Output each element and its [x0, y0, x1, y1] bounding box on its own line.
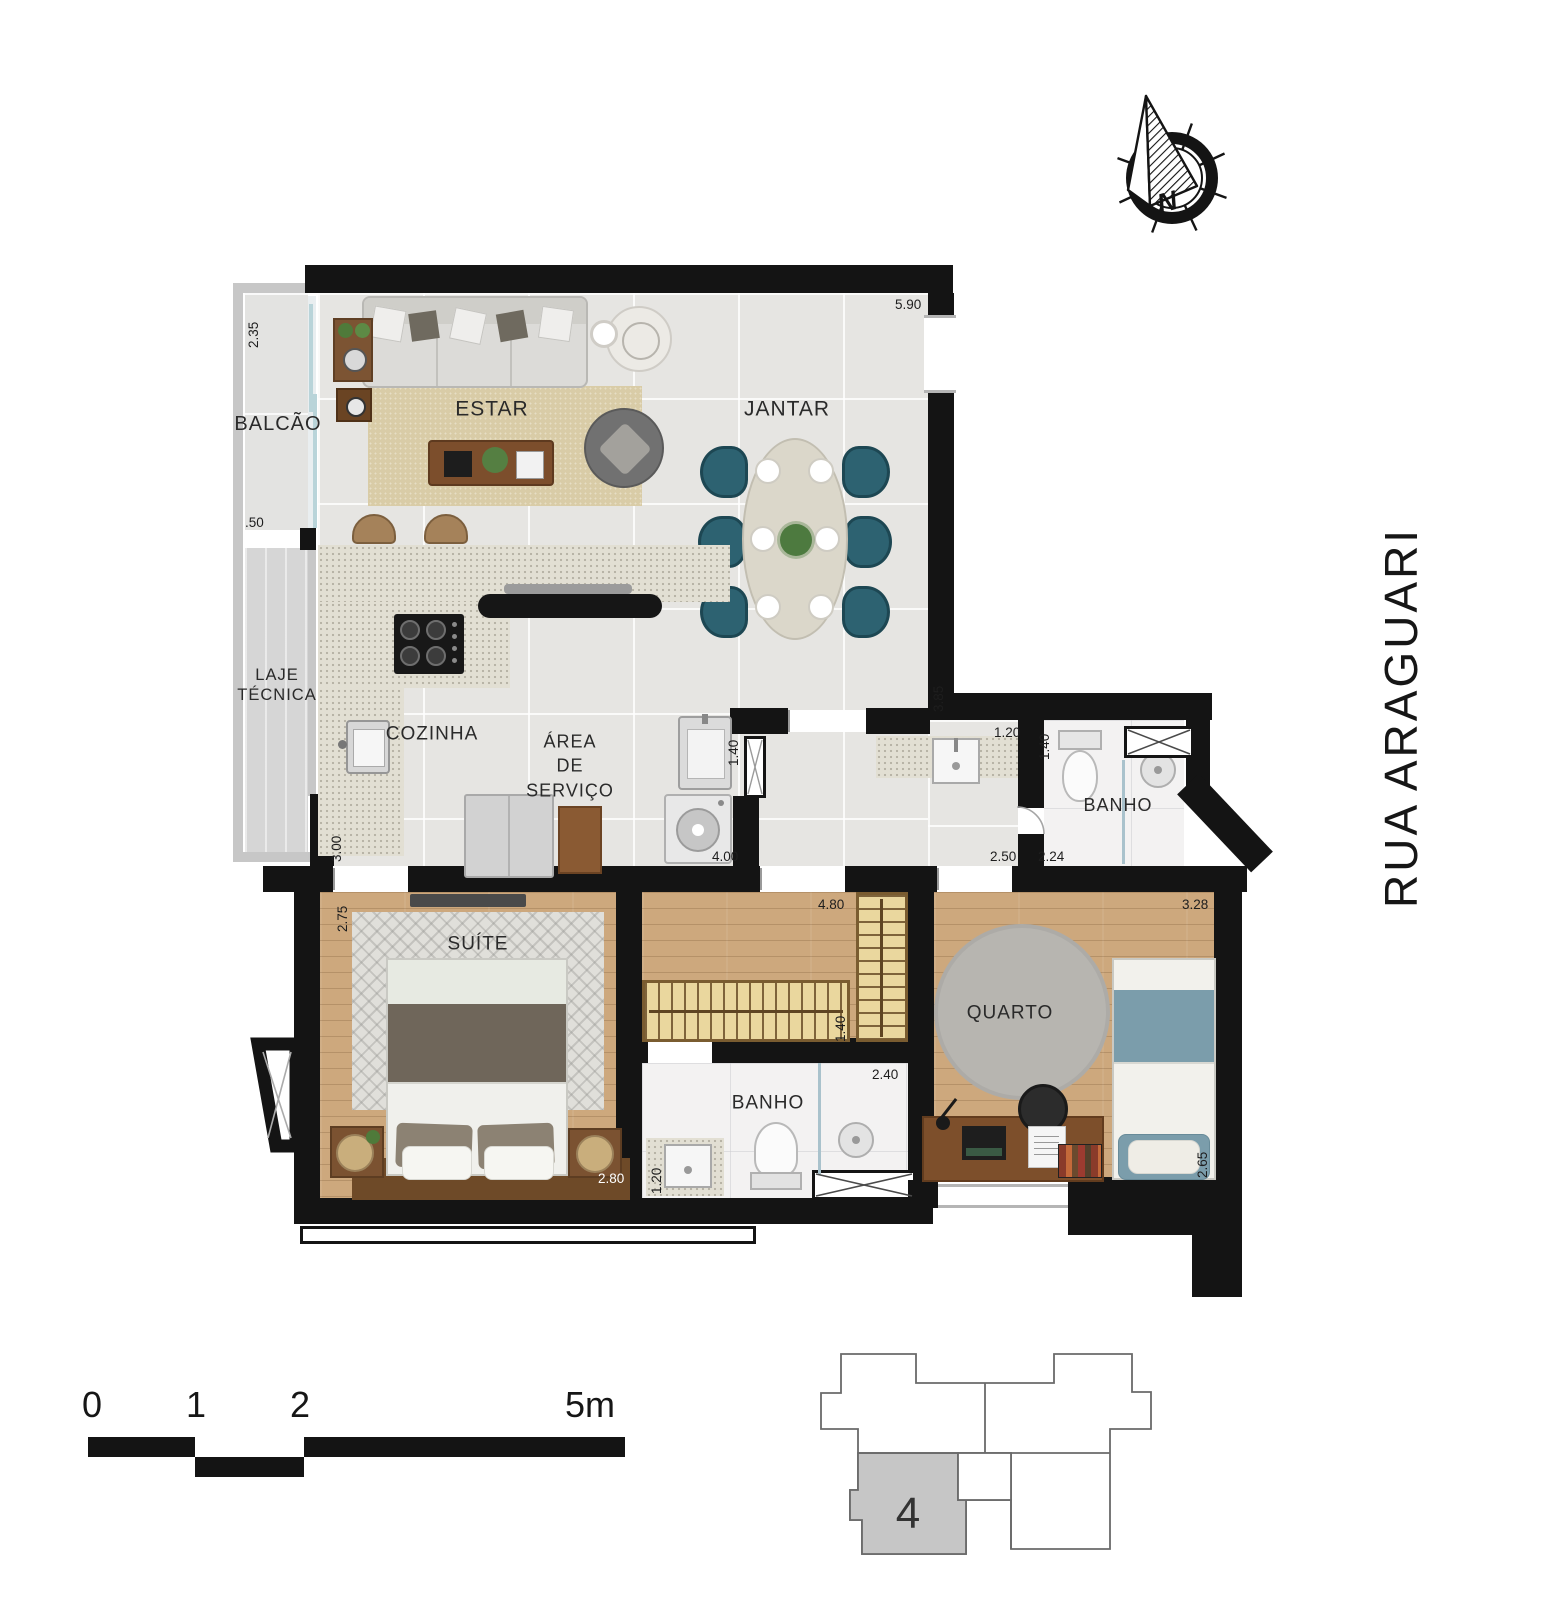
door-opening-bedroom: [937, 868, 1016, 890]
scale-bar-segment: [88, 1437, 195, 1457]
wall-diagonal: [1188, 784, 1262, 862]
window-living: [924, 315, 956, 393]
shaft-suite: [258, 1044, 296, 1146]
wall-segment: [300, 528, 316, 550]
wall-segment: [908, 1180, 938, 1208]
dim-wc-sink: 1.20: [994, 726, 1020, 740]
counter-shelf: [504, 584, 632, 594]
sofa-pillow: [369, 305, 406, 342]
plate: [808, 458, 834, 484]
dim-service-width: 4.00: [712, 850, 738, 864]
scale-bar-segment: [304, 1437, 625, 1457]
wall-segment: [1012, 866, 1247, 892]
plate: [755, 458, 781, 484]
wardrobe: [642, 980, 850, 1042]
table-centerpiece-plant: [780, 524, 812, 556]
shaft-corridor: [744, 736, 766, 798]
floor-plan-page: N 4 BALCÃO LAJE TÉCNICA ESTAR JANTAR COZ…: [0, 0, 1552, 1600]
window-bath-suite: [812, 1170, 916, 1200]
room-label-banho-social: BANHO: [1083, 795, 1152, 817]
shower-head: [838, 1122, 874, 1158]
key-plan-outline: [821, 1354, 1151, 1554]
dim-living-width: 5.90: [895, 298, 921, 312]
compass-rose: N: [1098, 96, 1247, 252]
room-label-balcao: BALCÃO: [234, 412, 321, 436]
cooktop: [394, 614, 464, 674]
key-plan-unit-number: 4: [896, 1489, 920, 1538]
plant-side-table: [333, 318, 373, 382]
coffee-table: [428, 440, 554, 486]
dim-hall-length: 4.80: [818, 898, 844, 912]
sofa-pillow: [408, 310, 440, 342]
room-label-area-servico: ÁREA DE SERVIÇO: [526, 730, 614, 803]
deco-ring: [590, 320, 618, 348]
wc-sink: [932, 738, 980, 784]
toilet-bowl: [754, 1122, 798, 1176]
window-bath-social: [1124, 726, 1194, 758]
plate: [814, 526, 840, 552]
refrigerator: [464, 794, 554, 878]
dim-quarto-depth: 2.65: [1196, 1152, 1210, 1178]
room-label-banho-suite: BANHO: [732, 1093, 805, 1116]
dim-banho-suite-length: 2.40: [872, 1068, 898, 1082]
window-bedroom: [938, 1184, 1068, 1208]
toilet-bowl: [1062, 750, 1098, 802]
toilet: [1058, 730, 1102, 750]
wall-segment: [730, 708, 788, 734]
door-opening-bath-suite: [648, 1040, 712, 1061]
wall-segment: [928, 293, 954, 315]
dim-banho-social-length: 2.24: [1038, 850, 1064, 864]
wall-segment: [866, 708, 930, 734]
wall-segment: [1214, 866, 1242, 1180]
door-opening-hall: [760, 868, 849, 890]
wall-segment: [296, 1198, 933, 1224]
kitchen-cabinet: [558, 806, 602, 874]
nightstand: [330, 1126, 384, 1178]
key-plan-unit-highlight: [850, 1453, 966, 1554]
balcony-opening: [243, 530, 306, 548]
compass-needle-white: [1128, 96, 1150, 206]
toilet: [750, 1172, 802, 1190]
scale-tick-label: 0: [82, 1384, 102, 1426]
counter-black-top: [478, 594, 662, 618]
laundry-sink: [678, 716, 732, 790]
scale-tick-label: 1: [186, 1384, 206, 1426]
door-opening-suite: [333, 868, 412, 890]
dim-kitchen-depth: 3.00: [330, 836, 344, 862]
street-label: RUA ARAGUARI: [1374, 527, 1428, 908]
wall-segment: [1192, 1235, 1242, 1297]
room-label-quarto: QUARTO: [967, 1003, 1054, 1026]
dim-corridor-width: 2.50: [990, 850, 1016, 864]
plate: [755, 594, 781, 620]
wall-segment: [305, 265, 953, 293]
desk-books: [1058, 1144, 1102, 1178]
room-label-suite: SUÍTE: [448, 934, 509, 957]
dim-suite-depth: 2.75: [336, 906, 350, 932]
dining-chair: [700, 446, 748, 498]
door-opening-bath-social: [1018, 808, 1044, 834]
wardrobe: [856, 892, 908, 1042]
room-label-cozinha: COZINHA: [386, 724, 479, 747]
compass-north-label: N: [1154, 185, 1181, 219]
suite-sliding-door: [410, 894, 526, 907]
room-label-laje: LAJE TÉCNICA: [237, 666, 316, 706]
window-sill-suite: [300, 1226, 756, 1244]
wall-segment: [1068, 1177, 1242, 1235]
compass-needle-hatched: [1146, 96, 1197, 206]
sofa-pillow: [496, 310, 528, 342]
kitchen-sink: [346, 720, 390, 774]
dim-balcony-opening: .50: [245, 516, 264, 530]
sofa-pillow: [538, 306, 574, 342]
key-plan: 4: [821, 1354, 1151, 1554]
dim-banho-suite-width: 1.20: [650, 1168, 664, 1194]
faucet: [338, 740, 347, 749]
wall-segment: [928, 393, 954, 720]
shower-glass: [818, 1063, 821, 1175]
laptop: [962, 1126, 1006, 1160]
dim-closet-depth: 1.40: [834, 1016, 848, 1042]
plate: [808, 594, 834, 620]
room-label-estar: ESTAR: [455, 396, 528, 421]
plate: [750, 526, 776, 552]
bed-pillow: [402, 1146, 472, 1180]
dining-chair: [842, 446, 890, 498]
dining-chair: [844, 516, 892, 568]
scale-tick-label: 5m: [565, 1384, 615, 1426]
scale-tick-label: 2: [290, 1384, 310, 1426]
scale-bar-segment: [195, 1457, 304, 1477]
bed-pillow: [1128, 1140, 1200, 1174]
dim-balcony-depth: 2.35: [247, 322, 261, 348]
balcony-rail-bottom: [233, 852, 313, 862]
sofa-pillow: [449, 307, 487, 345]
dim-living-depth: 3.85: [932, 686, 946, 712]
balcony-rail-left: [233, 283, 243, 862]
dining-chair: [842, 586, 890, 638]
wall-segment: [928, 693, 1212, 720]
armchair: [584, 408, 664, 488]
dim-service-sink: 1.40: [727, 740, 741, 766]
balcony-rail-top: [233, 283, 313, 293]
lamp-table: [336, 388, 372, 422]
door-opening-living-corridor: [788, 710, 870, 732]
dim-suite-width: 2.80: [598, 1172, 624, 1186]
dim-quarto-width: 3.28: [1182, 898, 1208, 912]
wall-segment: [294, 866, 320, 1224]
bed-pillow: [484, 1146, 554, 1180]
bath-suite-sink: [664, 1144, 712, 1188]
room-label-jantar: JANTAR: [744, 396, 830, 421]
dim-banho-social-width: 1.40: [1038, 734, 1052, 760]
